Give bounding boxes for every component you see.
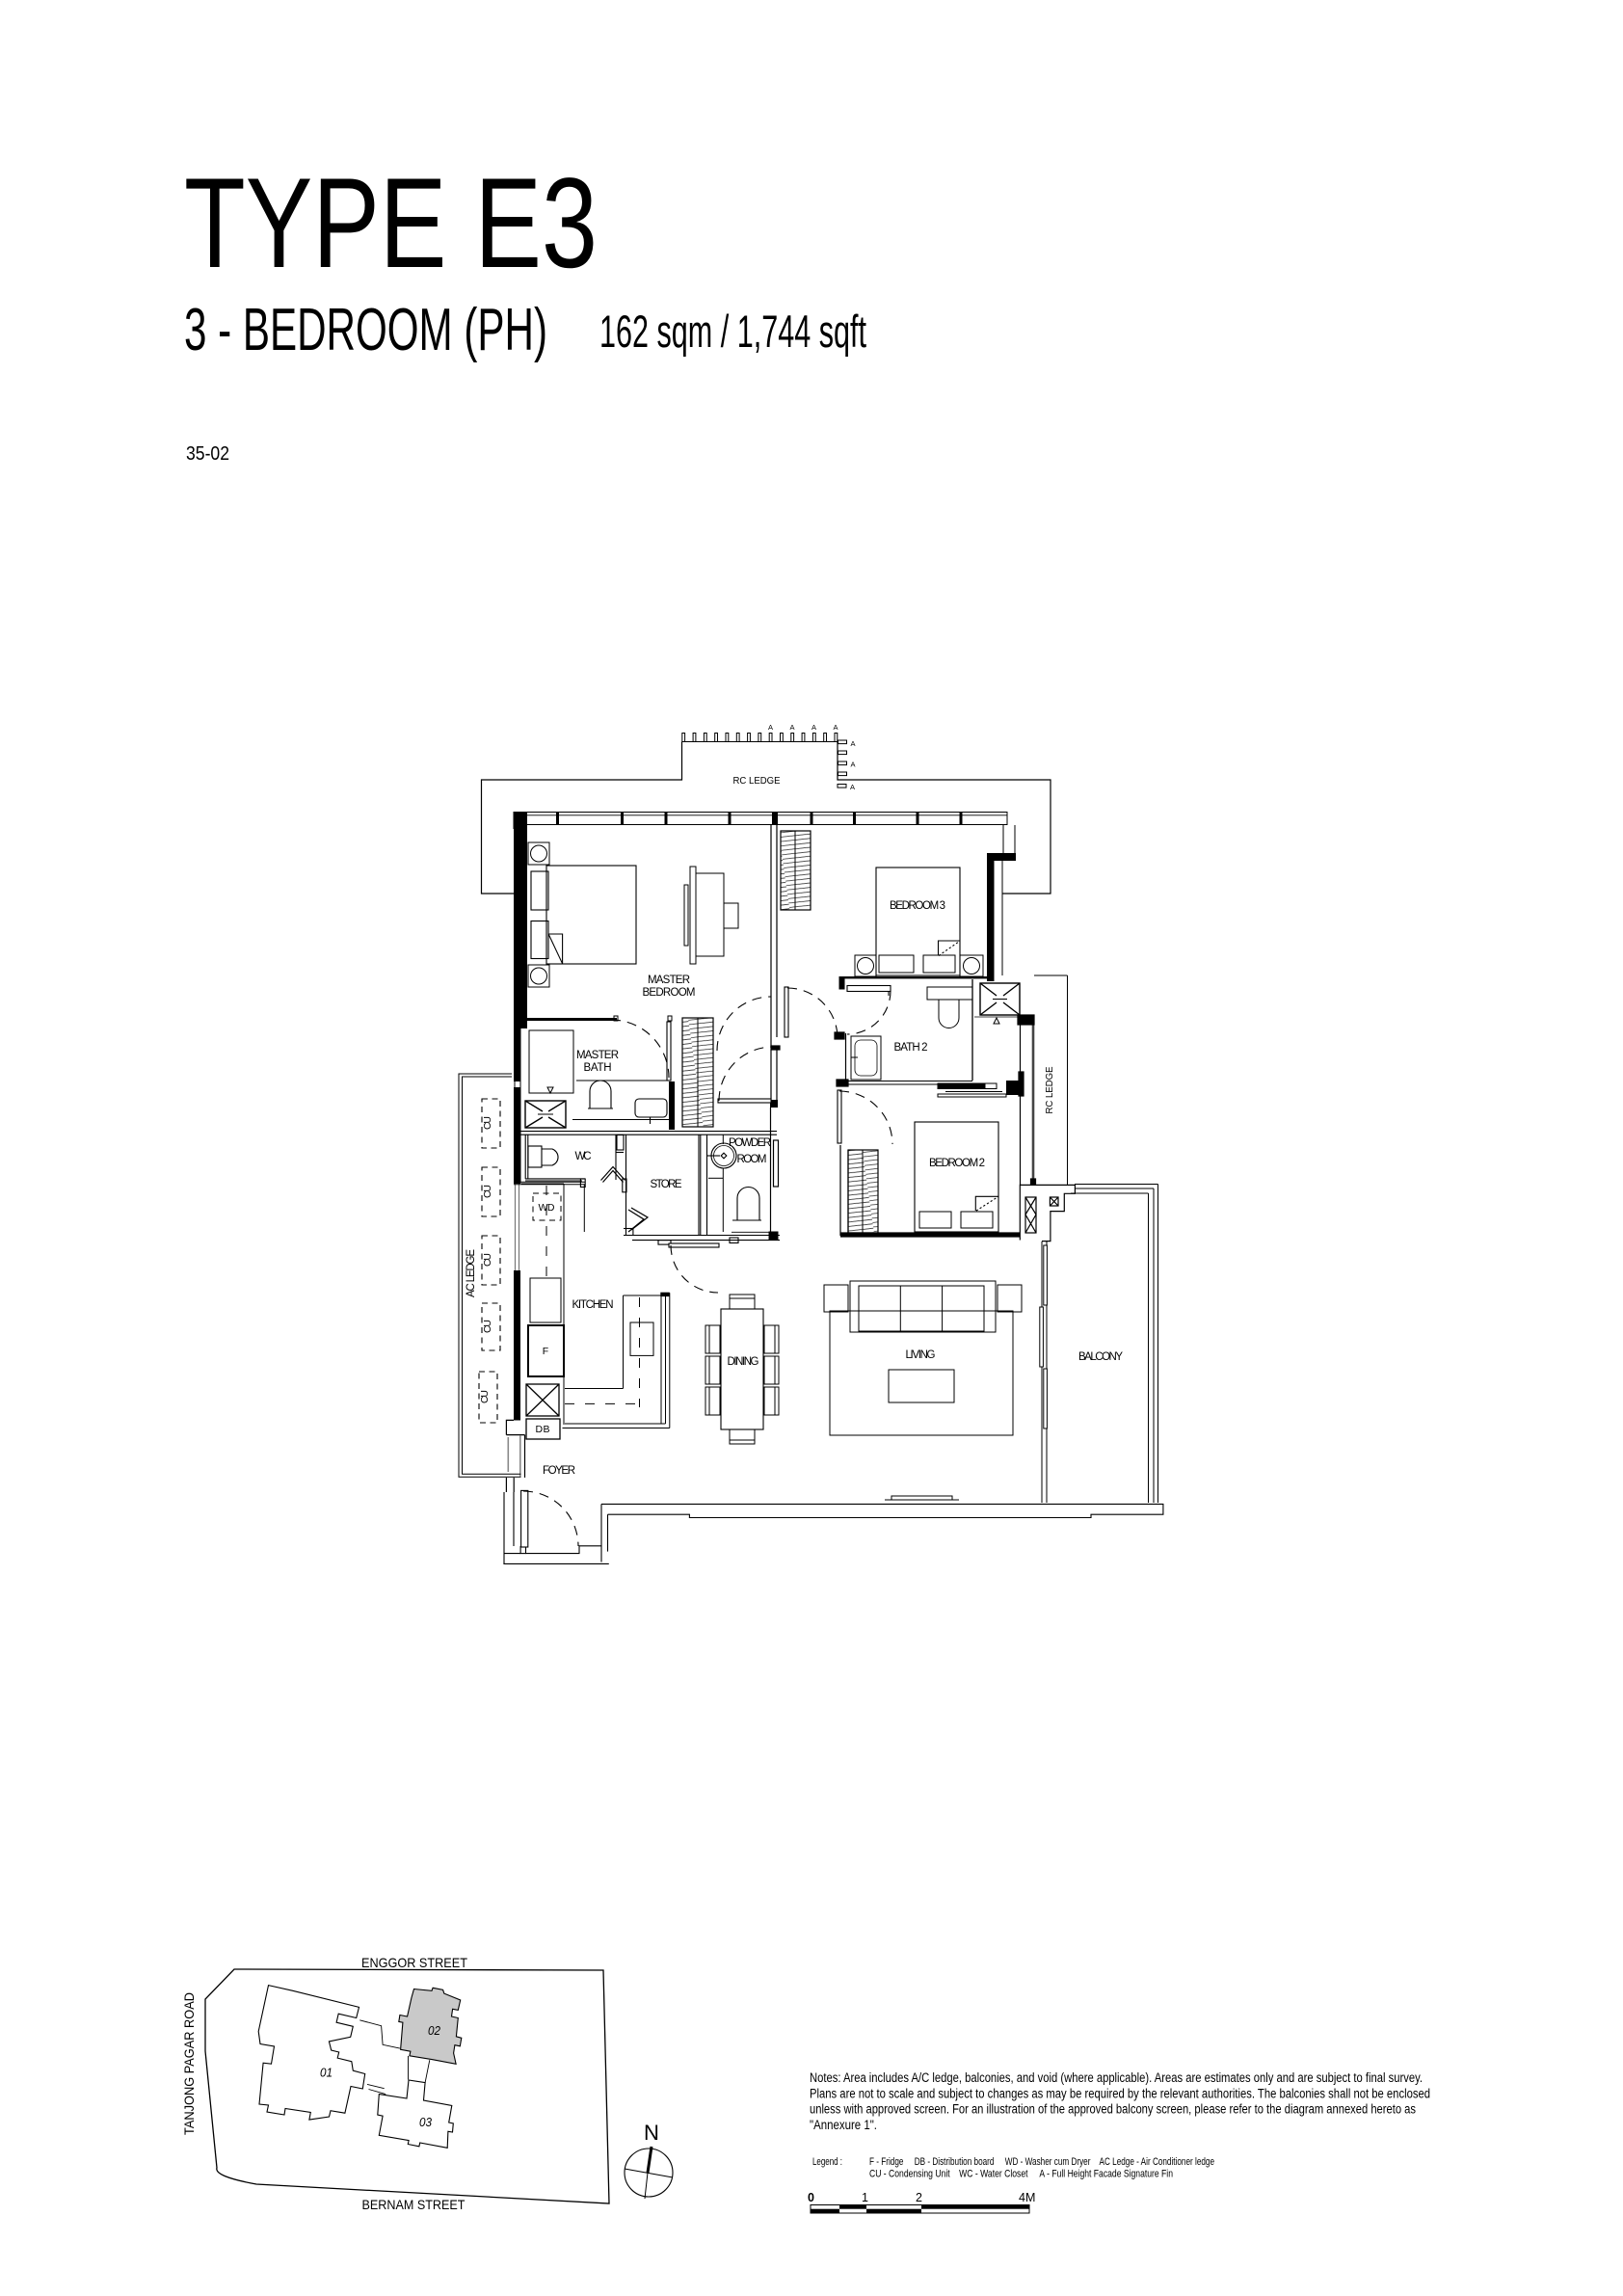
svg-text:ROOM: ROOM	[737, 1154, 767, 1165]
svg-text:03: 03	[419, 2116, 432, 2129]
svg-text:ENGGOR STREET: ENGGOR STREET	[361, 1955, 467, 1970]
svg-text:A: A	[811, 723, 816, 732]
svg-text:Plans are not to scale and sub: Plans are not to scale and subject to ch…	[810, 2086, 1430, 2100]
svg-text:01: 01	[320, 2067, 333, 2080]
svg-text:BALCONY: BALCONY	[1078, 1351, 1123, 1363]
svg-text:"Annexure 1".: "Annexure 1".	[810, 2118, 877, 2132]
svg-text:2: 2	[916, 2191, 922, 2204]
svg-text:02: 02	[428, 2024, 440, 2038]
svg-text:A: A	[851, 739, 856, 748]
svg-text:RC LEDGE: RC LEDGE	[733, 775, 781, 787]
svg-text:A: A	[850, 783, 855, 791]
svg-text:DINING: DINING	[728, 1356, 759, 1368]
svg-text:CU: CU	[482, 1185, 493, 1198]
svg-text:CU: CU	[482, 1320, 493, 1333]
svg-text:BEDROOM: BEDROOM	[643, 987, 696, 999]
svg-text:CU: CU	[479, 1390, 491, 1403]
svg-text:MASTER: MASTER	[576, 1050, 619, 1061]
svg-text:LIVING: LIVING	[906, 1349, 936, 1361]
svg-text:0: 0	[808, 2191, 814, 2204]
svg-text:WD: WD	[539, 1202, 555, 1214]
svg-text:BATH: BATH	[584, 1062, 612, 1074]
svg-text:A: A	[768, 723, 773, 732]
svg-text:F - Fridge DB - Distributi: F - Fridge DB - Distribution board WD - …	[869, 2156, 1214, 2168]
svg-text:F: F	[543, 1346, 548, 1357]
svg-text:WC: WC	[575, 1151, 592, 1162]
svg-text:POWDER: POWDER	[729, 1137, 771, 1149]
svg-text:TANJONG PAGAR ROAD: TANJONG PAGAR ROAD	[181, 1992, 197, 2135]
svg-text:CU: CU	[482, 1116, 493, 1130]
svg-text:35-02: 35-02	[186, 442, 229, 465]
svg-text:A: A	[851, 761, 856, 769]
svg-text:N: N	[644, 2121, 659, 2145]
svg-text:BERNAM STREET: BERNAM STREET	[362, 2197, 466, 2212]
svg-text:A: A	[790, 723, 795, 732]
svg-text:STORE: STORE	[651, 1179, 682, 1190]
svg-text:1: 1	[862, 2191, 868, 2204]
svg-text:FOYER: FOYER	[543, 1465, 575, 1477]
svg-text:162 sqm / 1,744 sqft: 162 sqm / 1,744 sqft	[599, 306, 866, 357]
svg-text:unless with approved screen. F: unless with approved screen. For an illu…	[810, 2102, 1416, 2117]
svg-text:TYPE E3: TYPE E3	[184, 152, 598, 295]
svg-text:CU - Condensing Unit WC - W: CU - Condensing Unit WC - Water Closet A…	[869, 2169, 1173, 2180]
svg-text:AC LEDGE: AC LEDGE	[466, 1249, 477, 1297]
svg-text:CU: CU	[482, 1253, 493, 1267]
svg-text:MASTER: MASTER	[648, 974, 690, 986]
svg-text:KITCHEN: KITCHEN	[572, 1299, 614, 1311]
svg-text:Notes: Area includes A/C ledge: Notes: Area includes A/C ledge, balconie…	[810, 2070, 1423, 2085]
svg-text:4M: 4M	[1019, 2191, 1035, 2204]
svg-text:3 - BEDROOM (PH): 3 - BEDROOM (PH)	[184, 297, 547, 363]
svg-text:Legend :: Legend :	[812, 2156, 842, 2168]
svg-text:DB: DB	[536, 1424, 550, 1435]
svg-text:BEDROOM 2: BEDROOM 2	[929, 1158, 985, 1169]
svg-text:BEDROOM 3: BEDROOM 3	[890, 900, 945, 912]
svg-text:A: A	[834, 723, 838, 732]
svg-text:RC LEDGE: RC LEDGE	[1044, 1067, 1055, 1114]
svg-text:BATH 2: BATH 2	[894, 1042, 928, 1054]
